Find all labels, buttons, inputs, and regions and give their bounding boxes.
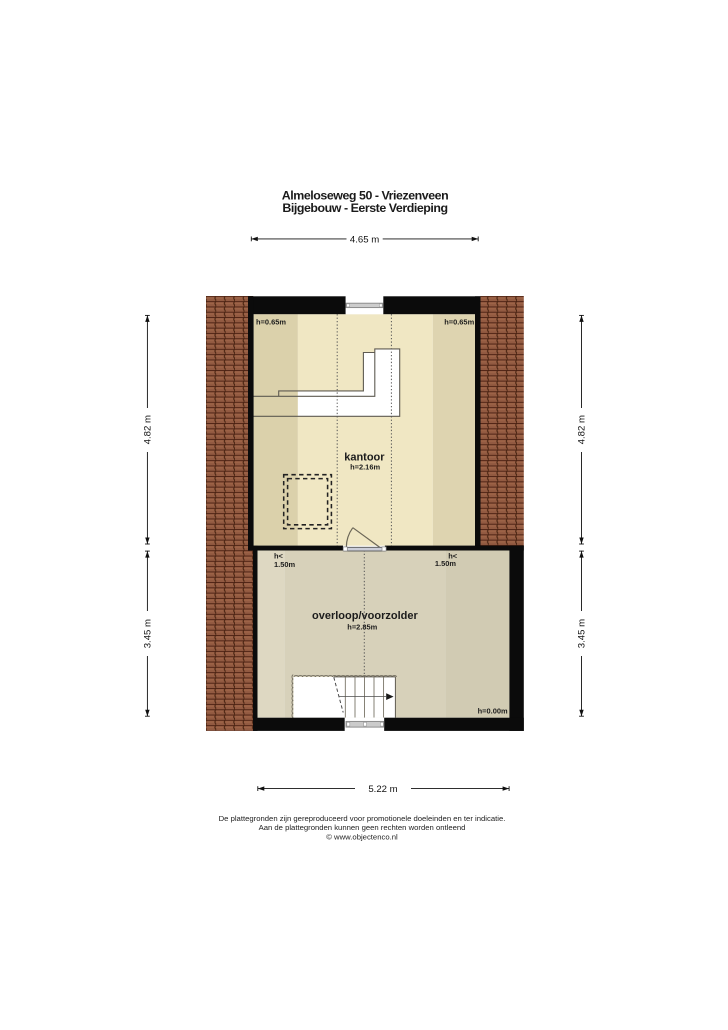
svg-text:4.82 m: 4.82 m: [143, 415, 154, 444]
svg-text:5.22 m: 5.22 m: [368, 784, 397, 795]
svg-text:h=0.65m: h=0.65m: [256, 318, 286, 327]
svg-text:4.65 m: 4.65 m: [350, 234, 379, 245]
svg-text:1.50m: 1.50m: [435, 559, 456, 568]
svg-text:De plattegronden zijn gereprod: De plattegronden zijn gereproduceerd voo…: [219, 814, 506, 823]
svg-text:h=0.65m: h=0.65m: [444, 318, 474, 327]
svg-text:© www.objectenco.nl: © www.objectenco.nl: [326, 833, 398, 842]
svg-text:overloop/voorzolder: overloop/voorzolder: [312, 610, 418, 622]
svg-text:4.82 m: 4.82 m: [577, 415, 588, 444]
svg-text:Bijgebouw - Eerste Verdieping: Bijgebouw - Eerste Verdieping: [282, 201, 447, 215]
svg-text:3.45 m: 3.45 m: [577, 619, 588, 648]
svg-text:h=2.85m: h=2.85m: [347, 622, 377, 631]
svg-text:1.50m: 1.50m: [274, 560, 295, 569]
svg-text:3.45 m: 3.45 m: [143, 619, 154, 648]
svg-text:Aan de plattegronden kunnen ge: Aan de plattegronden kunnen geen rechten…: [259, 823, 466, 832]
svg-text:h=2.16m: h=2.16m: [350, 462, 380, 471]
svg-text:h=0.00m: h=0.00m: [478, 707, 508, 716]
